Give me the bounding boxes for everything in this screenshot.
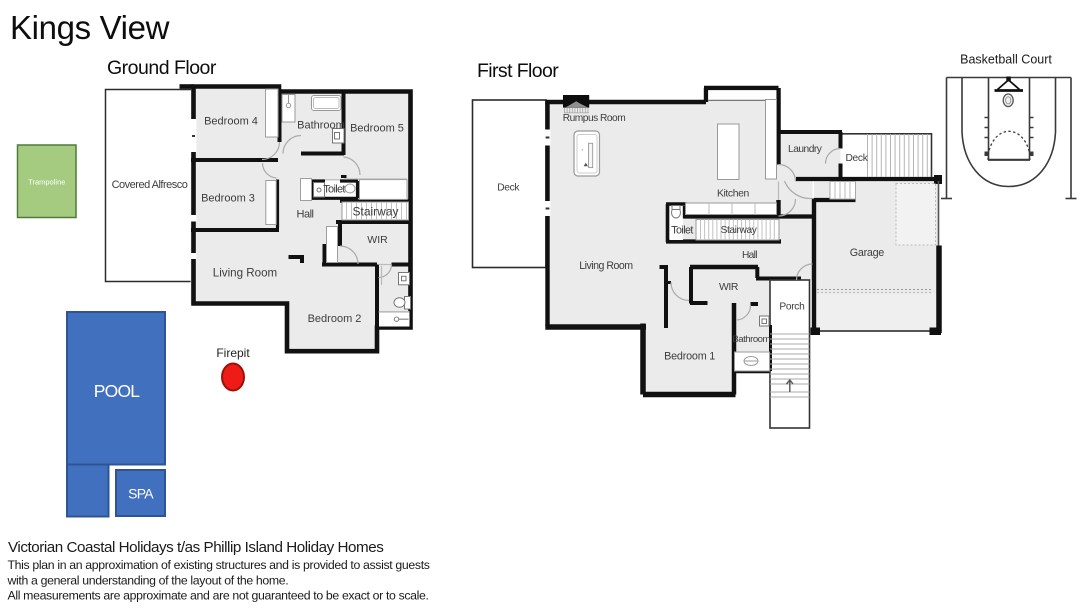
svg-text:All measurements are approxima: All measurements are approximate and are… <box>8 589 429 603</box>
svg-text:Laundry: Laundry <box>788 144 823 155</box>
svg-text:Living Room: Living Room <box>213 267 277 280</box>
svg-text:Bedroom 2: Bedroom 2 <box>308 313 362 325</box>
svg-text:Rumpus Room: Rumpus Room <box>563 113 625 124</box>
svg-text:Deck: Deck <box>497 182 520 193</box>
svg-text:WIR: WIR <box>367 234 388 246</box>
svg-text:Toilet: Toilet <box>323 184 345 196</box>
svg-text:Bedroom 1: Bedroom 1 <box>664 351 715 363</box>
svg-text:Stairway: Stairway <box>352 205 398 219</box>
svg-text:POOL: POOL <box>94 381 140 401</box>
svg-text:WIR: WIR <box>719 282 739 293</box>
svg-text:Ground Floor: Ground Floor <box>107 57 217 79</box>
svg-text:Basketball Court: Basketball Court <box>960 53 1052 67</box>
svg-text:Bathroom: Bathroom <box>732 334 770 345</box>
svg-text:Bedroom 5: Bedroom 5 <box>350 123 404 135</box>
svg-text:Kings View: Kings View <box>10 9 170 46</box>
svg-text:Firepit: Firepit <box>216 346 250 360</box>
svg-text:Bathroom: Bathroom <box>297 120 345 132</box>
svg-text:Bedroom 4: Bedroom 4 <box>204 116 258 128</box>
svg-text:SPA: SPA <box>128 486 154 502</box>
svg-text:This plan in an approximation: This plan in an approximation of existin… <box>8 558 430 572</box>
svg-text:Deck: Deck <box>845 153 868 164</box>
svg-text:Hall: Hall <box>742 250 757 261</box>
svg-text:with a general understanding o: with a general understanding of the layo… <box>7 574 289 588</box>
svg-text:Living Room: Living Room <box>579 260 633 272</box>
svg-text:First Floor: First Floor <box>477 60 559 82</box>
svg-text:Toilet: Toilet <box>671 224 693 236</box>
svg-text:Trampoline: Trampoline <box>28 178 65 187</box>
svg-text:Stairway: Stairway <box>721 225 758 236</box>
svg-text:Porch: Porch <box>779 302 804 313</box>
svg-text:Hall: Hall <box>297 209 314 221</box>
svg-text:Bedroom 3: Bedroom 3 <box>201 193 255 205</box>
svg-text:Victorian Coastal Holidays t/a: Victorian Coastal Holidays t/as Phillip … <box>8 539 384 556</box>
svg-text:Covered Alfresco: Covered Alfresco <box>112 179 188 191</box>
svg-text:Kitchen: Kitchen <box>717 188 749 199</box>
svg-text:Garage: Garage <box>850 247 885 259</box>
